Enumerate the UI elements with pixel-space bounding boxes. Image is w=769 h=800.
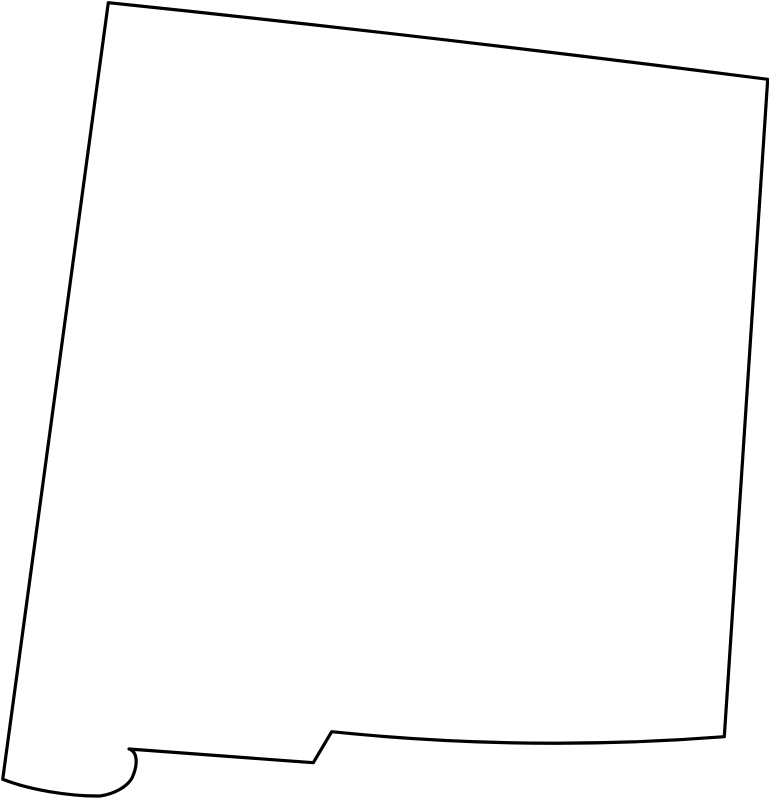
map-canvas (0, 0, 769, 800)
new-mexico-state-outline (3, 3, 768, 796)
new-mexico-map (0, 0, 769, 800)
